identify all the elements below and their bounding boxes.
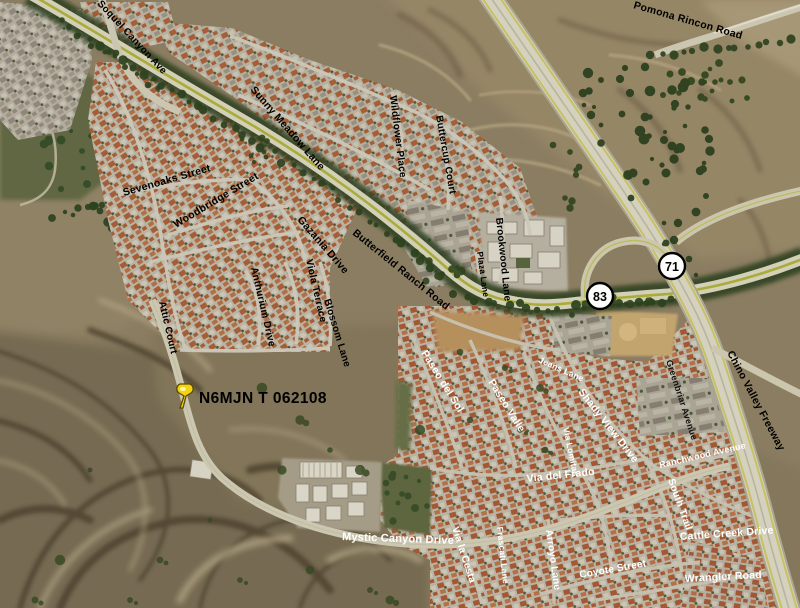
svg-text:83: 83 <box>593 290 607 304</box>
svg-text:71: 71 <box>665 260 679 274</box>
svg-text:N6MJN T 062108: N6MJN T 062108 <box>199 390 327 407</box>
